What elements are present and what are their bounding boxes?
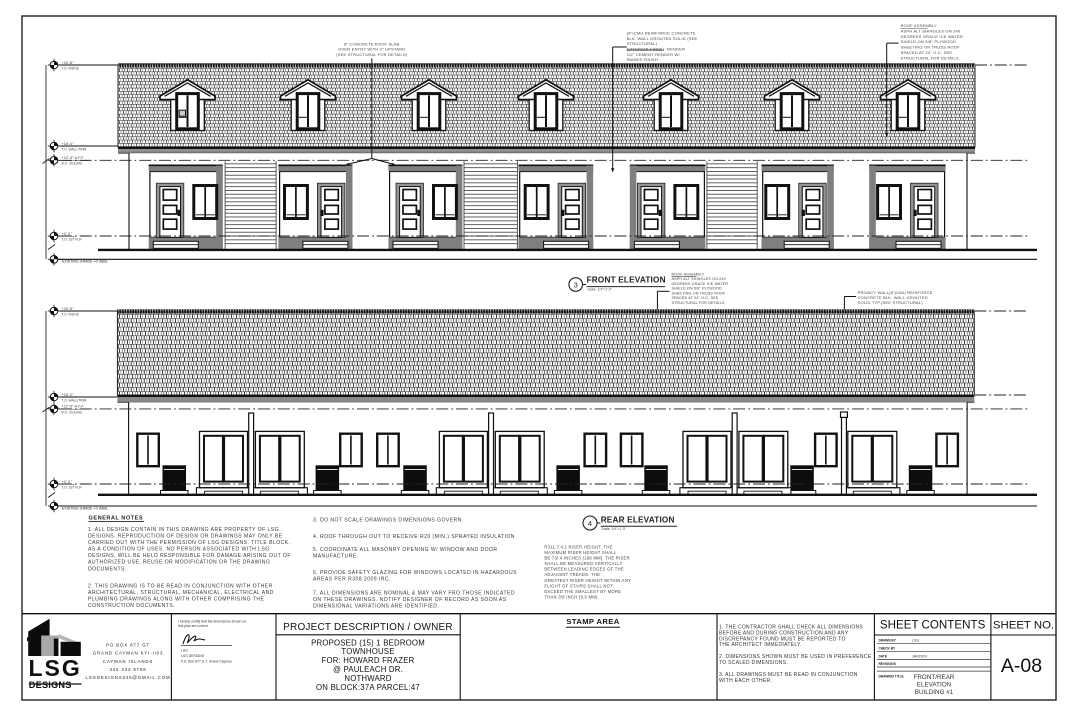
svg-text:A-08: A-08 [1001, 655, 1042, 677]
svg-text:+12'-6" A.F.F: +12'-6" A.F.F [62, 155, 85, 160]
svg-text:FRONT/REAR: FRONT/REAR [914, 674, 955, 681]
svg-text:ADJACENT TREADS. THE: ADJACENT TREADS. THE [544, 572, 600, 577]
svg-text:AREAS PER R308 2009 IRC.: AREAS PER R308 2009 IRC. [313, 576, 391, 582]
svg-text:EXISTING GRADE +0' ABSL: EXISTING GRADE +0' ABSL [62, 506, 108, 510]
svg-text:T.O. RIDGE: T.O. RIDGE [62, 66, 80, 70]
svg-text:DRAWING TITLE: DRAWING TITLE [879, 675, 904, 679]
svg-text:+20'-8": +20'-8" [62, 306, 75, 311]
svg-text:345 322 9786: 345 322 9786 [109, 667, 146, 672]
svg-text:STRUCTURAL): STRUCTURAL) [627, 41, 658, 46]
svg-text:DEGREES GRACE ICE WATER: DEGREES GRACE ICE WATER [672, 282, 729, 286]
svg-text:ROOF ASSEMBLY: ROOF ASSEMBLY [672, 272, 705, 276]
svg-text:PROJECT DESCRIPTION / OWNER: PROJECT DESCRIPTION / OWNER [283, 622, 453, 633]
svg-text:NOTHWARD: NOTHWARD [344, 674, 391, 683]
svg-text:+16'-0": +16'-0" [62, 141, 75, 146]
svg-text:GENERAL NOTES: GENERAL NOTES [89, 516, 144, 522]
svg-text:+0'-0": +0'-0" [62, 479, 73, 484]
svg-text:(SEE STRUCTURAL FOR DETAILS): (SEE STRUCTURAL FOR DETAILS) [336, 52, 408, 57]
svg-text:CHECK BY: CHECK BY [879, 647, 897, 651]
svg-text:SOLID TYP.(SEE STRUCTURAL): SOLID TYP.(SEE STRUCTURAL) [858, 300, 924, 305]
svg-text:@ PAULEACH DR.: @ PAULEACH DR. [333, 665, 403, 674]
svg-text:P.O. Box 877 G.T. Grand Cayma: P.O. Box 877 G.T. Grand Cayman [181, 660, 232, 664]
svg-text:PAINES FINISH: PAINES FINISH [627, 57, 658, 62]
svg-text:I hereby certify that the dime: I hereby certify that the dimensions sho… [178, 620, 246, 624]
svg-text:LSG: LSG [29, 655, 82, 681]
svg-text:SHALL BE MEASURED VERTICALLY: SHALL BE MEASURED VERTICALLY [544, 561, 622, 566]
svg-text:ELEVATION: ELEVATION [917, 681, 952, 688]
svg-text:Scale: 1/4"=1'-0": Scale: 1/4"=1'-0" [602, 527, 627, 531]
svg-text:LSG: LSG [181, 649, 188, 653]
svg-text:FLIGHT OF STAIRS SHALL NOT: FLIGHT OF STAIRS SHALL NOT [544, 583, 613, 588]
svg-text:BLK. WALL GROUTED SOLID (SEE: BLK. WALL GROUTED SOLID (SEE [627, 36, 698, 41]
svg-text:8" CONCRETE ROOF SLAB: 8" CONCRETE ROOF SLAB [344, 41, 400, 46]
svg-text:TO SCALED DIMENSIONS.: TO SCALED DIMENSIONS. [719, 660, 788, 666]
svg-text:ASPH ALT SHINGLES ON 240: ASPH ALT SHINGLES ON 240 [901, 29, 961, 34]
svg-text:5. COORDINATE ALL MASONRY OPEN: 5. COORDINATE ALL MASONRY OPENING W/ WIN… [313, 547, 498, 553]
svg-text:B.O. CEILING: B.O. CEILING [62, 410, 83, 414]
svg-text:EXCEED THE SMALLEST BY MORE: EXCEED THE SMALLEST BY MORE [544, 589, 621, 594]
svg-text:T.O. WALL/TRIM: T.O. WALL/TRIM [62, 147, 87, 151]
svg-text:AUTHORIZED USE. REUSE OR MODIF: AUTHORIZED USE. REUSE OR MODIFICATION OR… [88, 560, 270, 566]
svg-text:BE 73/ 4 INCHES (196 MM). THE: BE 73/ 4 INCHES (196 MM). THE RISER [544, 556, 629, 561]
svg-text:SHIELD ON 5/8" PLYWOOD: SHIELD ON 5/8" PLYWOOD [672, 287, 722, 291]
svg-text:4: 4 [588, 519, 592, 528]
svg-text:LSG DESIGNS: LSG DESIGNS [181, 654, 205, 658]
svg-text:ARCHITECTURAL, STRUCTURAL, MEC: ARCHITECTURAL, STRUCTURAL, MECHANICAL, E… [88, 590, 274, 596]
svg-text:R311.7.4.1 RISER HEIGHT. THE: R311.7.4.1 RISER HEIGHT. THE [544, 545, 612, 550]
svg-text:1. ALL DESIGN CONTAIN IN THIS: 1. ALL DESIGN CONTAIN IN THIS DRAWING AR… [88, 527, 279, 533]
svg-text:FRONT ELEVATION: FRONT ELEVATION [587, 276, 666, 285]
svg-text:BETWEEN LEADING EDGES OF THE: BETWEEN LEADING EDGES OF THE [544, 567, 624, 572]
svg-text:FOR: HOWARD FRAZER: FOR: HOWARD FRAZER [322, 656, 415, 665]
svg-text:SHEET CONTENTS: SHEET CONTENTS [880, 619, 986, 632]
svg-text:PO BOX 877 GT: PO BOX 877 GT [106, 643, 150, 648]
svg-text:DRAWN BY: DRAWN BY [879, 638, 897, 642]
svg-text:this plan are correct.: this plan are correct. [178, 624, 209, 628]
svg-text:+0'-0": +0'-0" [62, 231, 73, 236]
svg-text:+12'-6" A.F.F: +12'-6" A.F.F [62, 404, 85, 409]
svg-text:T.O. RIDGE: T.O. RIDGE [62, 312, 80, 316]
svg-text:LSG: LSG [912, 638, 919, 642]
svg-text:2. THIS DRAWING IS TO BE READ: 2. THIS DRAWING IS TO BE READ IN CONJUNC… [88, 584, 273, 590]
svg-text:SHEET NO.: SHEET NO. [993, 620, 1054, 632]
svg-text:REVISIONS: REVISIONS [879, 662, 896, 666]
svg-text:SPACED AT 24" O.C. SEE: SPACED AT 24" O.C. SEE [672, 296, 719, 300]
svg-text:(8")CMU REINFORCE CONCRETE: (8")CMU REINFORCE CONCRETE [627, 31, 696, 36]
svg-text:Scale: 1/4"=1'-0": Scale: 1/4"=1'-0" [588, 288, 613, 292]
svg-text:STRUCTURAL FOR DETAILS.: STRUCTURAL FOR DETAILS. [901, 55, 961, 60]
svg-text:+20'-8": +20'-8" [62, 60, 75, 65]
svg-text:4. ROOF THROUGH OUT TO RECEIVE: 4. ROOF THROUGH OUT TO RECEIVE R20 (MIN.… [313, 534, 515, 540]
svg-text:DOCUMENTS.: DOCUMENTS. [88, 566, 127, 572]
svg-text:DIMENSIONAL VARIATIONS ARE IDE: DIMENSIONAL VARIATIONS ARE IDENTIFIED. [313, 603, 439, 609]
svg-text:OVER ENTRY WITH 2" UPSTAND: OVER ENTRY WITH 2" UPSTAND [338, 47, 405, 52]
svg-text:MAXIMUM RISER HEIGHT SHALL: MAXIMUM RISER HEIGHT SHALL [544, 550, 616, 555]
svg-text:SHEETING ON TRUSS ROOF: SHEETING ON TRUSS ROOF [672, 291, 726, 295]
svg-text:GREATEST RISER HEIGHT WITHIN A: GREATEST RISER HEIGHT WITHIN ANY [544, 578, 631, 583]
svg-text:6. PROVIDE SAFETY GLAZING FOR: 6. PROVIDE SAFETY GLAZING FOR WINDOWS LO… [313, 570, 517, 576]
svg-text:LSGDESIGNS345@GMAIL.COM: LSGDESIGNS345@GMAIL.COM [85, 675, 170, 680]
svg-text:THE ARCHITECT IMMEDIATELY.: THE ARCHITECT IMMEDIATELY. [719, 642, 802, 648]
svg-text:PLUMBING DRAWINGS ALONG WITH O: PLUMBING DRAWINGS ALONG WITH OTHER COMPR… [88, 597, 264, 603]
svg-text:STRUCTURAL FOR DETAILS.: STRUCTURAL FOR DETAILS. [672, 301, 726, 305]
svg-text:3: 3 [574, 280, 578, 289]
svg-text:ROOF ASSEMBLY: ROOF ASSEMBLY [901, 23, 937, 28]
svg-text:CAYMAN ISLANDS: CAYMAN ISLANDS [103, 659, 153, 664]
svg-text:CONSTRUCTION DOCUMENTS.: CONSTRUCTION DOCUMENTS. [88, 603, 175, 609]
svg-text:SPACED AT 24" O.C. SEE: SPACED AT 24" O.C. SEE [901, 50, 953, 55]
svg-text:ASPH ALT SHINGLES ON 240: ASPH ALT SHINGLES ON 240 [672, 277, 726, 281]
svg-text:CARRIED OUT WITH THE PERMISSIO: CARRIED OUT WITH THE PERMISSION OF LSG D… [88, 540, 290, 546]
svg-text:MANUFACTURE.: MANUFACTURE. [313, 554, 359, 560]
svg-text:JAN2024: JAN2024 [912, 655, 927, 659]
svg-text:DESIGNS. REPRODUCTION OF DESIG: DESIGNS. REPRODUCTION OF DESIGN OR DRAWI… [88, 534, 283, 540]
svg-text:WITH EACH OTHER.: WITH EACH OTHER. [719, 678, 772, 684]
svg-text:DEGREES GRACE ICE WATER: DEGREES GRACE ICE WATER [901, 34, 963, 39]
svg-text:DATE: DATE [879, 655, 887, 659]
svg-text:STAMP AREA: STAMP AREA [566, 617, 619, 626]
svg-text:+16'-0": +16'-0" [62, 392, 75, 397]
svg-text:THAN 3/8 INCH (9.5 MM).: THAN 3/8 INCH (9.5 MM). [544, 594, 599, 599]
svg-text:B.O. CEILING: B.O. CEILING [62, 162, 83, 166]
svg-text:EXISTING GRADE +0' ABSL: EXISTING GRADE +0' ABSL [62, 260, 108, 264]
svg-text:REAR ELEVATION: REAR ELEVATION [601, 515, 675, 524]
svg-text:T.O. 1ST FLR: T.O. 1ST FLR [62, 485, 83, 489]
svg-text:1/2" CEMENT RENDER W/: 1/2" CEMENT RENDER W/ [627, 52, 681, 57]
svg-text:3. DO NOT SCALE DRAWINGS DIMEN: 3. DO NOT SCALE DRAWINGS DIMENSIONS GOVE… [313, 518, 464, 524]
svg-text:BUILDING #1: BUILDING #1 [915, 689, 954, 696]
svg-text:SHIELD ON 5/8" PLYWOOD: SHIELD ON 5/8" PLYWOOD [901, 39, 956, 44]
svg-text:PROPOSED (15) 1 BEDROOM: PROPOSED (15) 1 BEDROOM [311, 638, 425, 647]
svg-text:GRAND CAYMAN KYI-II03: GRAND CAYMAN KYI-II03 [93, 651, 163, 656]
svg-text:ON THESE DRAWINGS. NOTIFY DESI: ON THESE DRAWINGS. NOTIFY DESIGNER OF RE… [313, 597, 507, 603]
svg-text:TOWNHOUSE: TOWNHOUSE [341, 647, 394, 656]
svg-text:DESIGNS, WILL BE HELD RESPONSI: DESIGNS, WILL BE HELD RESPONSIBLE FOR DA… [88, 553, 291, 559]
svg-text:SHEETING ON TRUSS ROOF: SHEETING ON TRUSS ROOF [901, 45, 961, 50]
svg-text:AS A CONDITION OF USES. NO PER: AS A CONDITION OF USES. NO PERSON ASSOCI… [88, 547, 270, 553]
svg-text:T.O. WALL/TRIM: T.O. WALL/TRIM [62, 398, 87, 402]
svg-text:T.O. 1ST FLR: T.O. 1ST FLR [62, 237, 83, 241]
svg-text:7. ALL DIMENSIONS ARE NOMINAL: 7. ALL DIMENSIONS ARE NOMINAL & MAY VARY… [313, 591, 515, 597]
svg-text:DESIGNS: DESIGNS [29, 680, 72, 690]
svg-text:ON BLOCK:37A PARCEL:47: ON BLOCK:37A PARCEL:47 [316, 683, 420, 692]
